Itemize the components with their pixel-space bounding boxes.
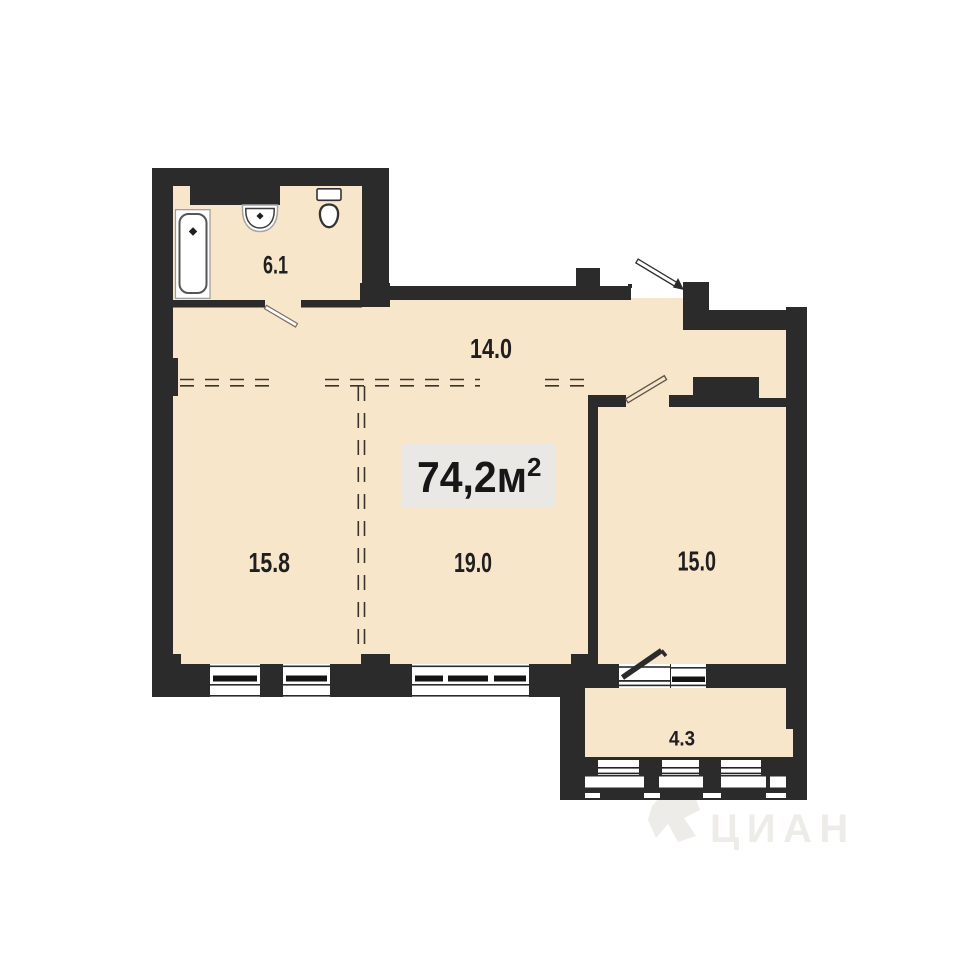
svg-text:4.3: 4.3	[669, 728, 695, 751]
svg-text:15.8: 15.8	[249, 547, 291, 578]
svg-text:19.0: 19.0	[454, 547, 492, 578]
svg-text:74,2м2: 74,2м2	[417, 452, 541, 502]
svg-text:15.0: 15.0	[678, 546, 717, 577]
svg-text:6.1: 6.1	[263, 252, 288, 280]
svg-text:ЦИАН: ЦИАН	[710, 807, 856, 851]
svg-text:14.0: 14.0	[470, 333, 512, 364]
